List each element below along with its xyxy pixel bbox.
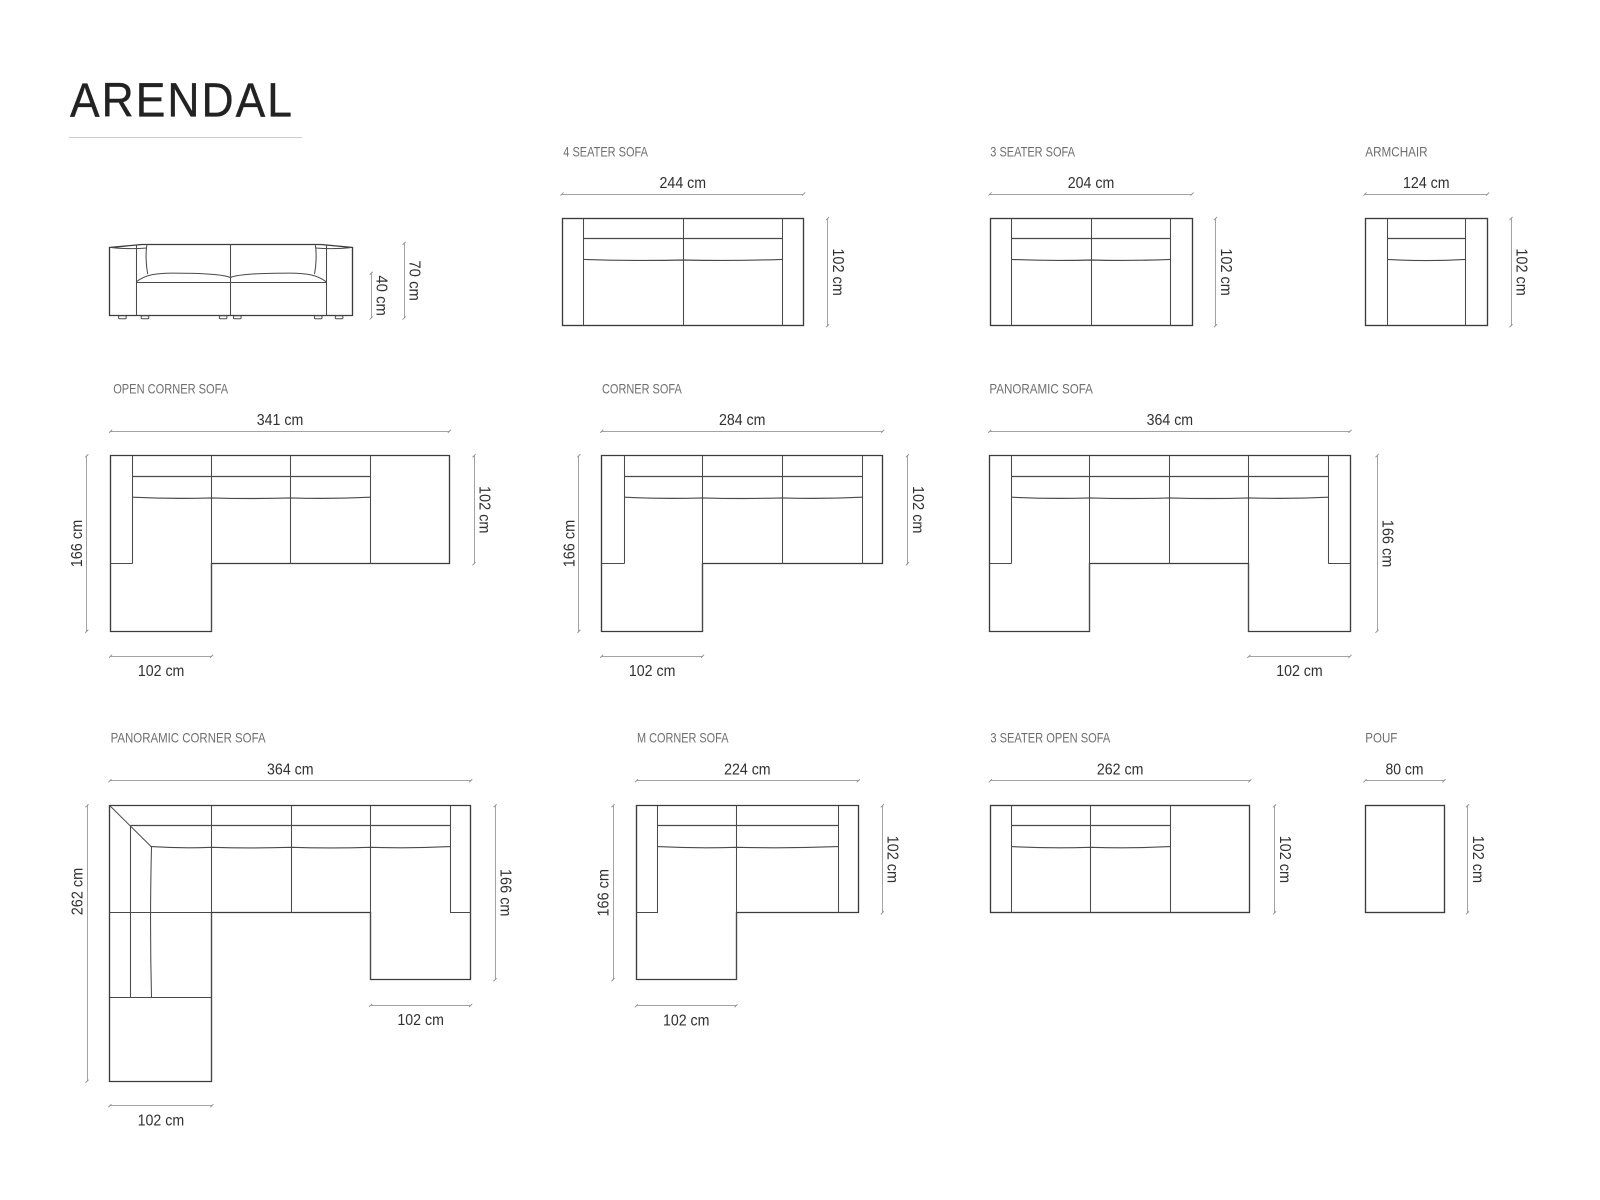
svg-text:102 cm: 102 cm <box>397 1012 444 1029</box>
svg-text:262 cm: 262 cm <box>69 868 86 916</box>
svg-text:102 cm: 102 cm <box>629 663 676 680</box>
svg-text:ARMCHAIR: ARMCHAIR <box>1365 144 1427 160</box>
svg-text:3 SEATER OPEN SOFA: 3 SEATER OPEN SOFA <box>990 730 1110 746</box>
svg-text:102 cm: 102 cm <box>1276 836 1293 884</box>
svg-text:POUF: POUF <box>1365 730 1397 746</box>
svg-text:40 cm: 40 cm <box>373 275 390 316</box>
svg-text:364 cm: 364 cm <box>1147 412 1194 429</box>
svg-text:70 cm: 70 cm <box>406 260 423 301</box>
svg-text:PANORAMIC CORNER SOFA: PANORAMIC CORNER SOFA <box>111 730 267 746</box>
svg-text:102 cm: 102 cm <box>138 663 185 680</box>
svg-text:244 cm: 244 cm <box>660 175 707 192</box>
svg-text:102 cm: 102 cm <box>1276 663 1323 680</box>
svg-text:102 cm: 102 cm <box>475 486 492 534</box>
svg-text:102 cm: 102 cm <box>829 248 846 296</box>
svg-text:102 cm: 102 cm <box>138 1113 185 1130</box>
svg-text:224 cm: 224 cm <box>724 762 771 779</box>
svg-text:102 cm: 102 cm <box>884 836 901 884</box>
svg-text:102 cm: 102 cm <box>663 1013 710 1030</box>
svg-text:ARENDAL: ARENDAL <box>70 75 294 128</box>
svg-text:284 cm: 284 cm <box>719 412 766 429</box>
svg-text:CORNER SOFA: CORNER SOFA <box>602 381 682 397</box>
svg-text:3 SEATER SOFA: 3 SEATER SOFA <box>990 144 1075 160</box>
svg-text:102 cm: 102 cm <box>909 486 926 534</box>
svg-text:166 cm: 166 cm <box>561 520 578 568</box>
svg-text:4 SEATER SOFA: 4 SEATER SOFA <box>563 144 648 160</box>
svg-text:PANORAMIC SOFA: PANORAMIC SOFA <box>989 381 1093 397</box>
svg-text:341 cm: 341 cm <box>257 412 304 429</box>
svg-text:166 cm: 166 cm <box>69 520 86 568</box>
svg-text:166 cm: 166 cm <box>497 869 514 917</box>
svg-text:M CORNER SOFA: M CORNER SOFA <box>637 730 729 746</box>
svg-text:OPEN CORNER SOFA: OPEN CORNER SOFA <box>113 381 229 397</box>
svg-text:166 cm: 166 cm <box>595 869 612 917</box>
svg-text:166 cm: 166 cm <box>1378 520 1395 568</box>
svg-text:102 cm: 102 cm <box>1469 836 1486 884</box>
svg-text:204 cm: 204 cm <box>1068 175 1115 192</box>
svg-text:102 cm: 102 cm <box>1512 248 1529 296</box>
svg-text:262 cm: 262 cm <box>1097 762 1144 779</box>
svg-text:80 cm: 80 cm <box>1386 762 1424 779</box>
svg-text:124 cm: 124 cm <box>1403 175 1450 192</box>
svg-text:364 cm: 364 cm <box>267 762 314 779</box>
svg-text:102 cm: 102 cm <box>1217 248 1234 296</box>
